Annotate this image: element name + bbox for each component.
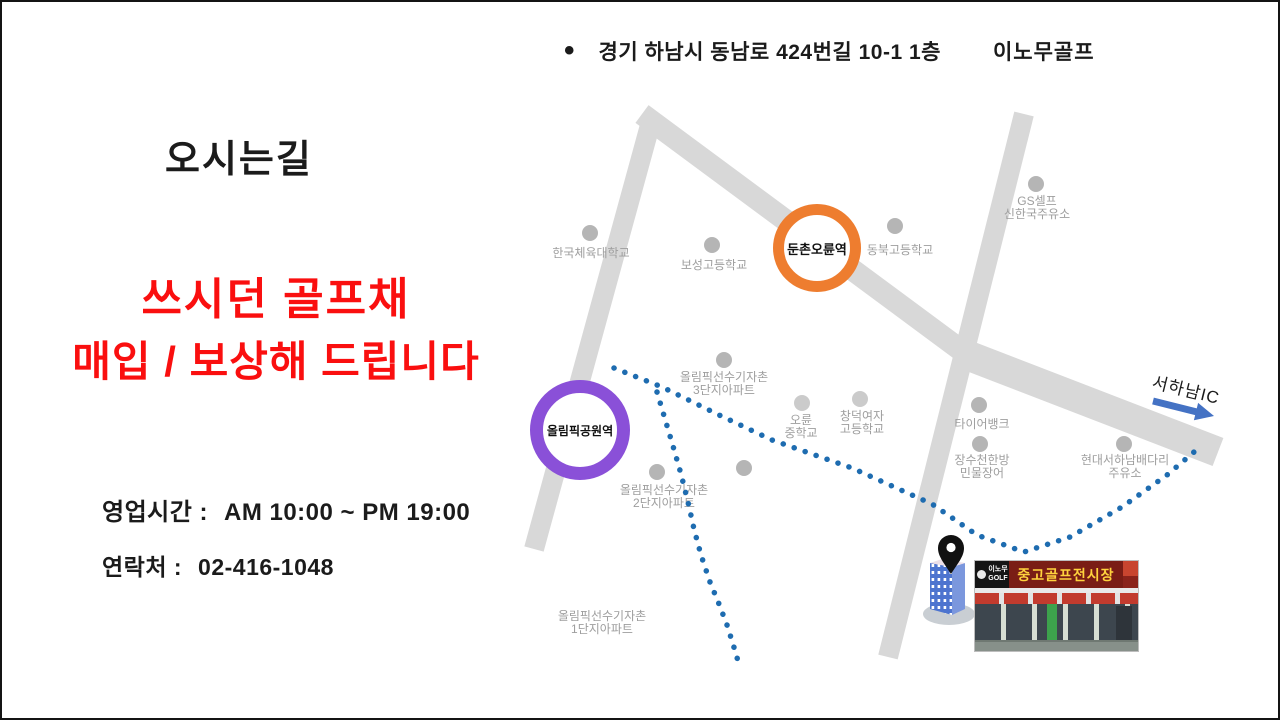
store-door <box>1116 606 1132 640</box>
logo-text: 이노무 GOLF <box>988 566 1007 582</box>
store-green-panel <box>1047 604 1057 640</box>
logo-brand-kr: 이노무 <box>988 566 1007 573</box>
route-dotted-main <box>614 368 1194 552</box>
store-sign-side <box>1123 561 1138 588</box>
storefront-photo: 이노무 GOLF 중고골프전시장 <box>975 561 1138 651</box>
ic-arrow-shaft <box>1153 401 1197 412</box>
flyer-slide: • 경기 하남시 동남로 424번길 10-1 1층 이노무골프 오시는길 쓰시… <box>0 0 1280 720</box>
store-sign: 이노무 GOLF 중고골프전시장 <box>975 561 1138 588</box>
route-dotted-branch <box>657 392 738 661</box>
logo-brand-en: GOLF <box>988 575 1007 582</box>
store-banners <box>975 593 1138 604</box>
store-ground <box>975 640 1138 651</box>
store-windows <box>975 604 1138 640</box>
logo-circle-icon <box>977 570 986 579</box>
store-sign-main: 중고골프전시장 <box>1009 561 1123 588</box>
store-logo: 이노무 GOLF <box>975 561 1009 588</box>
location-pin-icon <box>932 532 972 578</box>
